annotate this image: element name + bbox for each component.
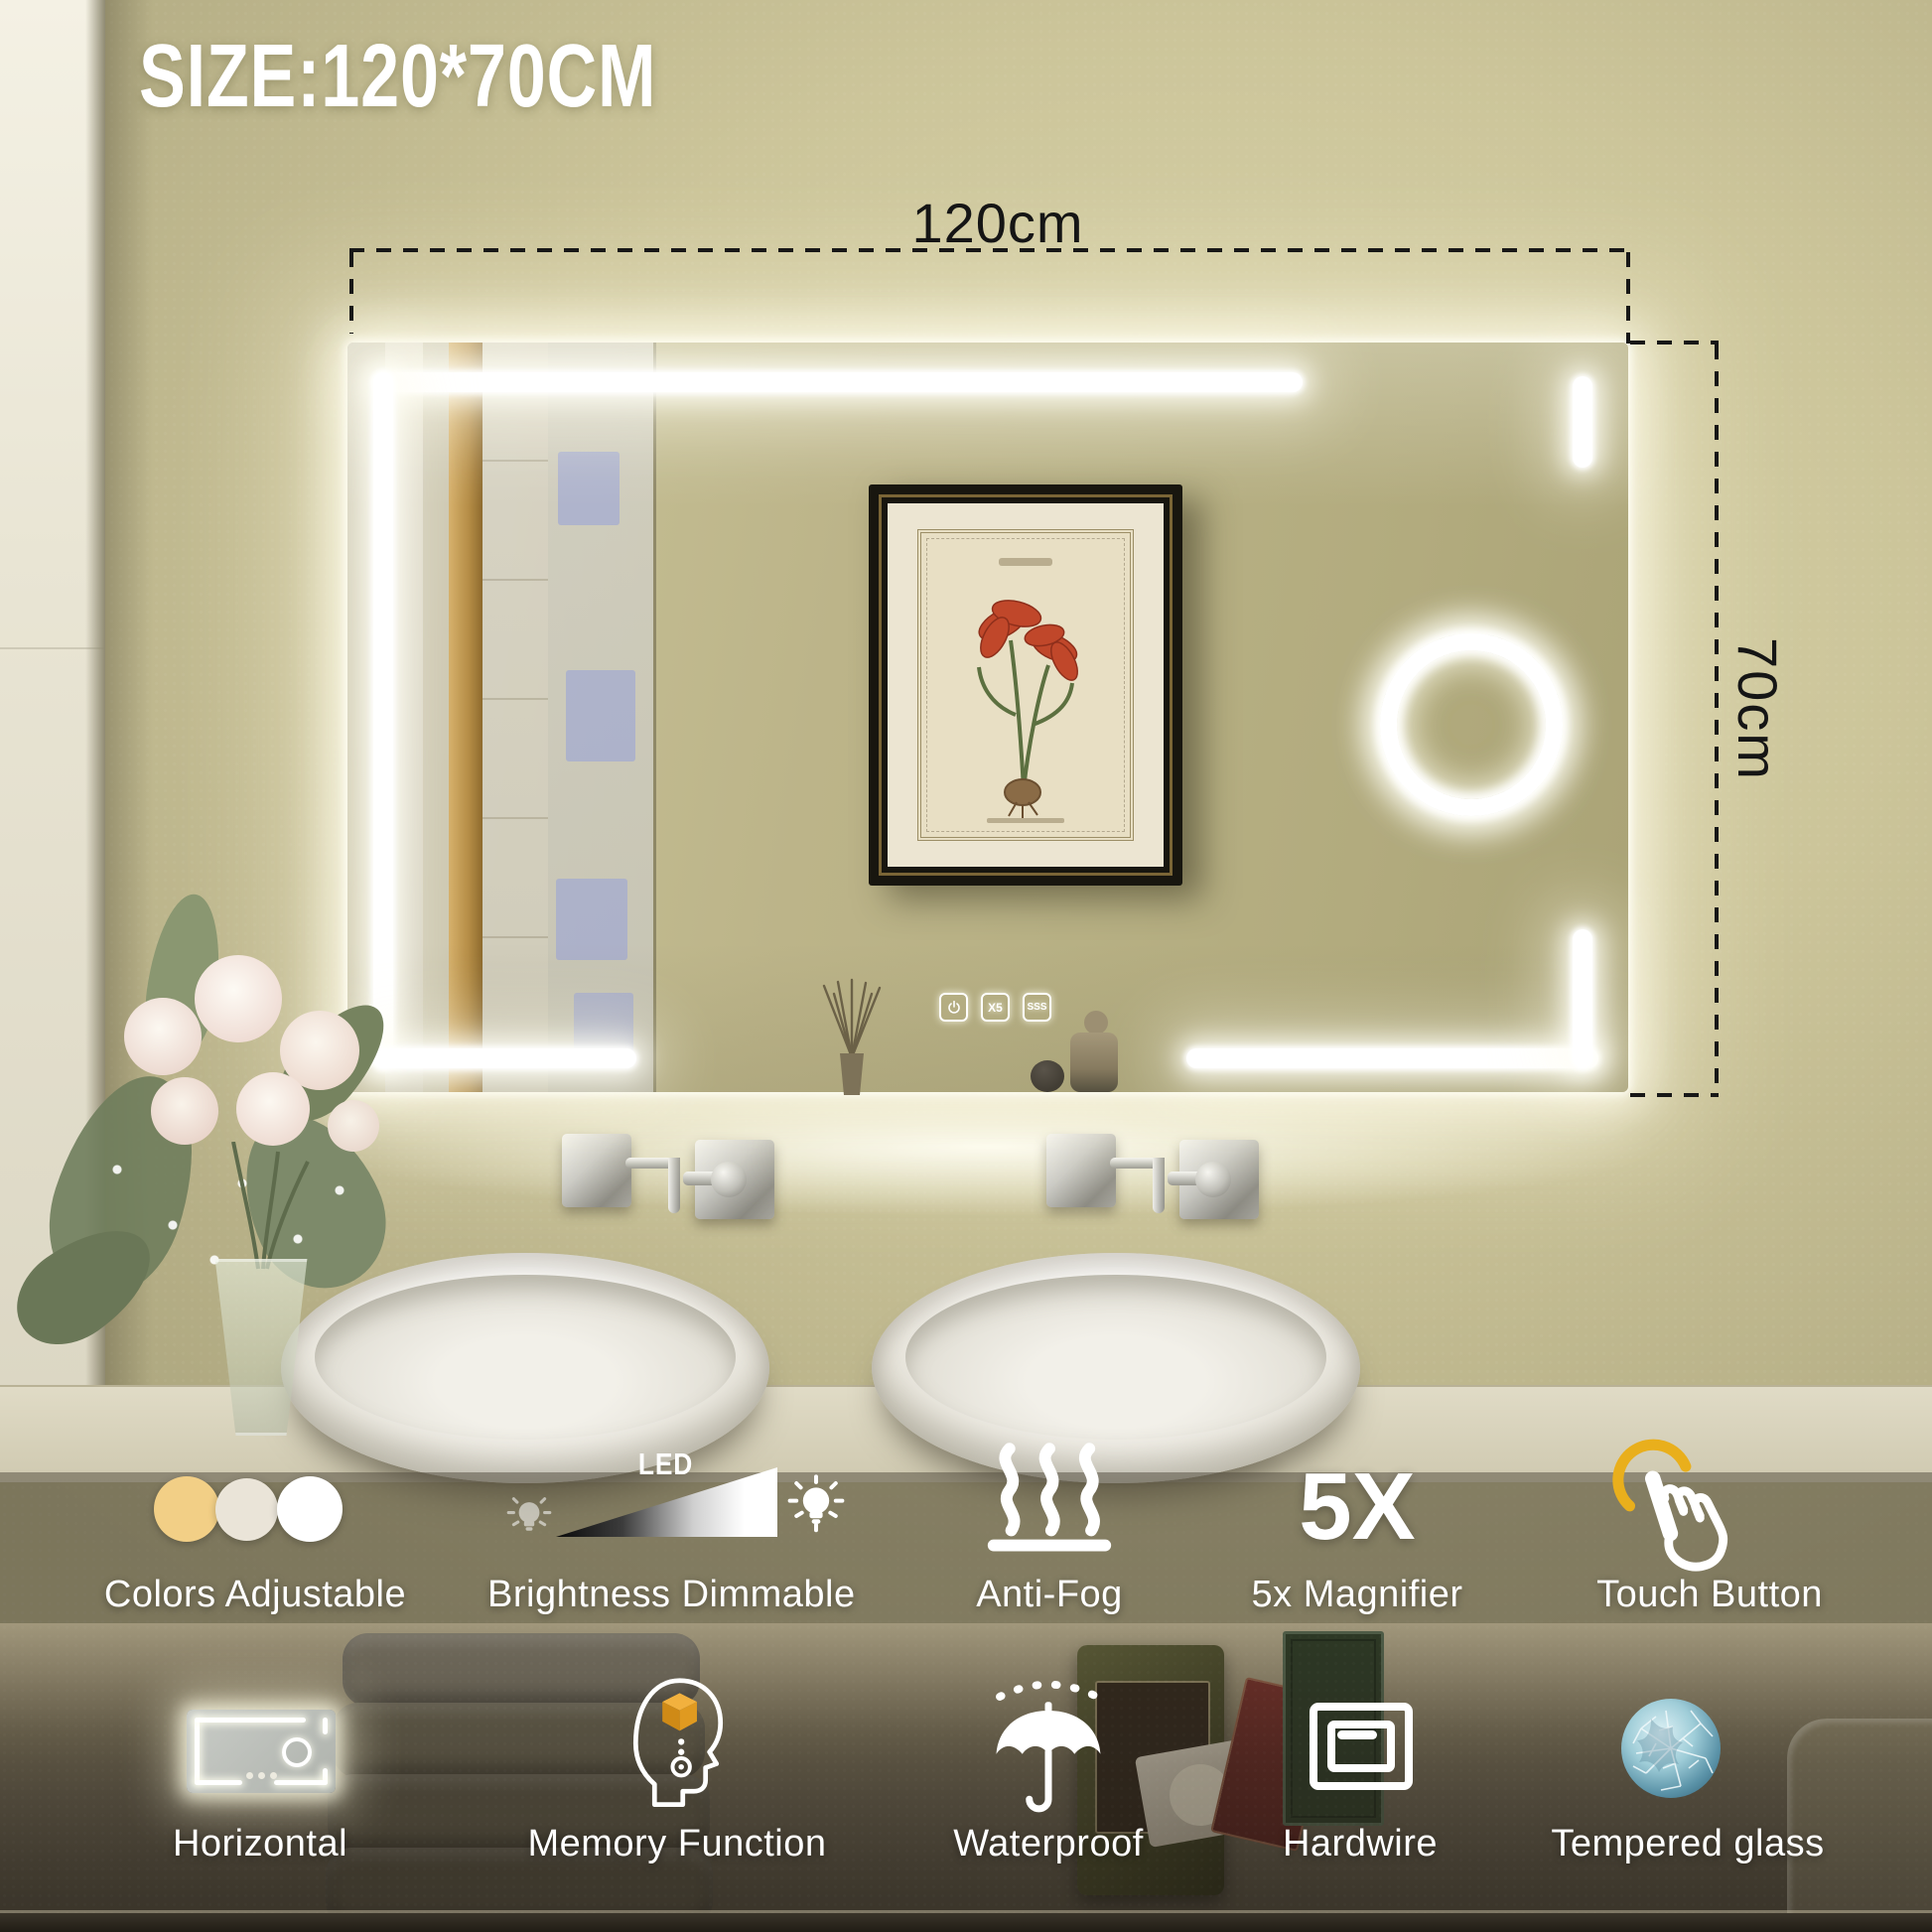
antifog-button-label: SSS [1027,1002,1046,1013]
feature-waterproof: Waterproof [870,1676,1227,1864]
faucet-spout-plate [1046,1134,1116,1207]
horizontal-mirror-icon [187,1710,336,1793]
bottom-dark-strip [0,1913,1932,1932]
feature-brightness-dimmable: LED Brightness Dimmable [487,1435,845,1613]
magnifier-button-label: X5 [988,1001,1003,1015]
feature-label: Anti-Fog [871,1574,1228,1616]
framed-botanical-art [869,484,1182,886]
tempered-glass-icon [1621,1699,1721,1798]
mini-magnifier-ring [282,1737,312,1767]
antifog-button[interactable]: SSS [1023,993,1051,1022]
steam-icon [986,1437,1113,1560]
mirror-underglow [318,1077,1658,1216]
faucet-spout-drop [668,1158,680,1213]
bright-bulb-icon [783,1472,849,1538]
feature-label: Waterproof [870,1823,1227,1865]
botanical-illustration [921,533,1130,837]
size-title: SIZE:120*70CM [139,26,656,128]
led-text: LED [625,1447,706,1482]
rose [151,1077,218,1145]
dim-bulb-icon [503,1490,555,1542]
led-strip-right-top [1573,376,1592,468]
feature-label: Tempered glass [1509,1823,1866,1865]
rose [236,1072,310,1146]
frame-mat [888,503,1164,867]
feature-label: Memory Function [498,1823,856,1865]
feature-anti-fog: Anti-Fog [871,1435,1228,1613]
feature-horizontal: Horizontal [81,1676,439,1864]
width-dimension-label: 120cm [894,191,1102,255]
memory-head-icon [622,1676,734,1811]
incense-diffuser [812,978,892,1095]
feature-tempered-glass: Tempered glass [1509,1676,1866,1864]
feature-label: Brightness Dimmable [487,1574,845,1616]
feature-touch-button: Touch Button [1531,1435,1888,1613]
umbrella-icon [987,1676,1110,1815]
feature-label: Horizontal [81,1823,439,1865]
feature-hardwire: Hardwire [1181,1676,1539,1864]
led-mirror: X5 SSS [347,343,1628,1092]
height-dimension-label: 70cm [1725,637,1790,796]
dimension-tick-top-right [1630,341,1719,345]
led-strip-bottom-right [1186,1048,1598,1068]
sink-bowl [315,1275,736,1440]
faucet-handle-knob [711,1162,747,1197]
power-button[interactable] [939,993,968,1022]
dimension-tick-right [1626,252,1630,344]
feature-colors-adjustable: Colors Adjustable [76,1435,434,1613]
frame-gold-trim [879,494,1173,876]
faucet-handle-knob [1195,1162,1231,1197]
dimension-tick-left [349,252,353,334]
feature-label: 5x Magnifier [1178,1574,1536,1616]
5x-text: 5X [1178,1452,1536,1562]
faucet-spout-plate [562,1134,631,1207]
feature-label: Hardwire [1181,1823,1539,1865]
magnifier-led-ring [1380,633,1563,816]
stone-pebble [1031,1060,1064,1092]
led-strip-top [373,372,1303,392]
magnifier-button[interactable]: X5 [981,993,1010,1022]
faucet-spout-drop [1153,1158,1165,1213]
hardwire-box-icon [1309,1702,1414,1791]
sink-bowl [905,1275,1326,1440]
flower-stems [204,1142,323,1271]
dimension-tick-bottom-right [1630,1093,1719,1097]
feature-label: Touch Button [1531,1574,1888,1616]
feature-memory-function: Memory Function [498,1676,856,1864]
touch-hand-icon [1588,1435,1743,1580]
led-strip-left [373,372,393,1068]
feature-5x-magnifier: 5X 5x Magnifier [1178,1435,1536,1613]
mirror-touch-controls: X5 SSS [939,993,1051,1022]
rose [195,955,282,1042]
rose [124,998,202,1075]
led-strip-right-bottom [1573,929,1592,1068]
led-mirror-product-image: X5 SSS [0,0,1932,1932]
dimension-line-height [1715,345,1719,1095]
led-strip-bottom-left [373,1048,636,1068]
botanical-print [917,529,1134,841]
power-icon [946,1000,962,1016]
feature-label: Colors Adjustable [76,1574,434,1616]
jar-knob [1084,1011,1108,1035]
round-jar [1070,1033,1118,1092]
